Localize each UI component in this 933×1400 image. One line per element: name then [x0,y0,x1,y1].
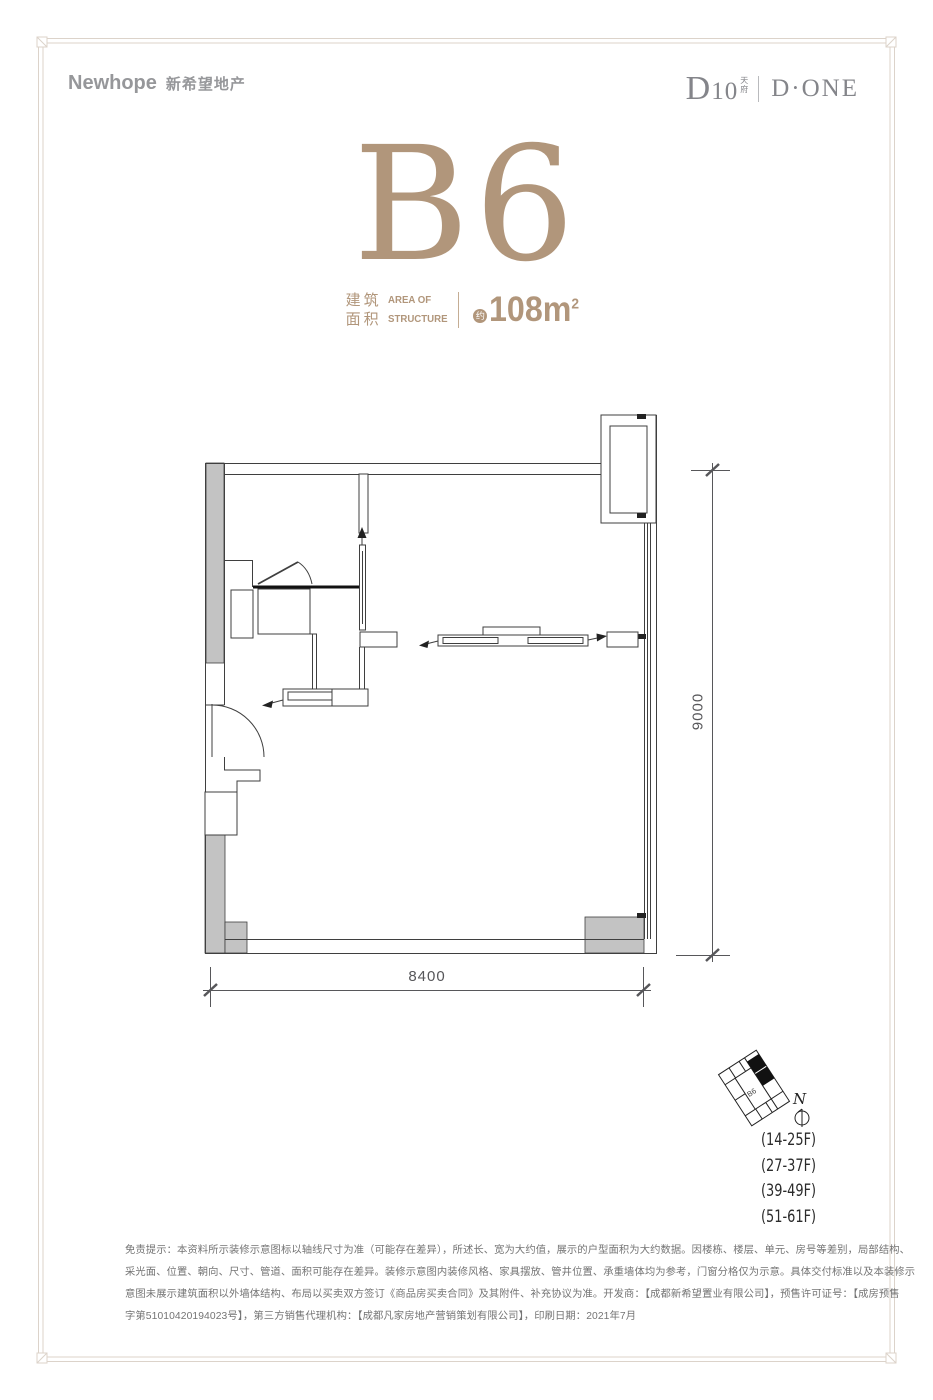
plan-shear-walls [205,463,644,953]
area-number-sup: 2 [572,295,580,312]
plan-bottom-slider [262,689,368,708]
disclaimer-text: 免责提示：本资料所示装修示意图标以轴线尺寸为准（可能存在差异），所述长、宽为大约… [125,1240,825,1328]
north-label: N [793,1090,806,1108]
area-number-value: 108m [489,290,571,329]
plan-bath-kitchen [225,560,365,689]
keyplan-building: B6 [719,1050,790,1126]
disclaimer-line: 字第51010420194023号】，第三方销售代理机构：【成都凡家房地产营销策… [125,1306,825,1328]
area-label-en: AREA OF STRUCTURE [388,291,448,329]
brochure-page: B6 Newhope 新希望地产 D10 天 府 D·ONE B6 建筑 面积 … [0,0,933,1400]
area-label-en-line2: STRUCTURE [388,310,448,329]
floor-range-item: (39-49F) [761,1179,816,1205]
plan-center-sliding-door [419,627,638,648]
plan-entry-door [205,704,264,835]
floor-range-item: (27-37F) [761,1154,816,1180]
area-number: 108m2 [489,293,579,327]
brand-newhope-cn: 新希望地产 [166,73,246,94]
disclaimer-line: 免责提示：本资料所示装修示意图标以轴线尺寸为准（可能存在差异），所述长、宽为大约… [125,1240,825,1262]
unit-title: B6 [0,126,933,284]
area-caption: 建筑 面积 AREA OF STRUCTURE 约 108m2 [0,291,933,329]
plan-vertical-slider [358,474,398,689]
brand-d10-sub-bottom: 府 [740,85,748,94]
floor-range-list: (14-25F) (27-37F) (39-49F) (51-61F) [761,1128,833,1230]
brand-d10: D10 [686,70,739,108]
disclaimer-line: 采光面、位置、朝向、尺寸、管道、面积可能存在差异。装修示意图内装修风格、家具摆放… [125,1262,825,1284]
plan-curtain-wall [645,523,651,939]
brand-newhope-en: Newhope [68,72,157,95]
brand-newhope-logo: Newhope 新希望地产 [68,72,246,95]
floor-range-item: (14-25F) [761,1128,816,1154]
area-label-cn-line2: 面积 [346,310,382,329]
brand-d10-sub-top: 天 [740,76,748,85]
area-label-cn-line1: 建筑 [346,291,382,310]
brand-divider [758,76,759,102]
area-label-en-line1: AREA OF [388,291,448,310]
floor-plan [205,414,657,954]
brand-d10-sub: 天 府 [740,76,748,94]
area-divider [458,292,459,328]
approx-badge: 约 [473,309,487,323]
dimension-width-label: 8400 [387,968,467,985]
brand-d10-done-logo: D10 天 府 D·ONE [686,70,859,108]
plan-outer-walls [205,415,657,954]
plan-bay-window [601,415,656,523]
area-value: 约 108m2 [473,293,587,327]
disclaimer-line: 意图未展示建筑面积以外墙体结构、布局以买卖双方签订《商品房买卖合同》及其附件、补… [125,1284,825,1306]
brand-done: D·ONE [771,75,859,103]
floor-range-item: (51-61F) [761,1205,816,1231]
north-compass-icon [795,1109,809,1127]
area-label-cn: 建筑 面积 [346,291,382,329]
dimension-height-label: 9000 [690,680,707,744]
